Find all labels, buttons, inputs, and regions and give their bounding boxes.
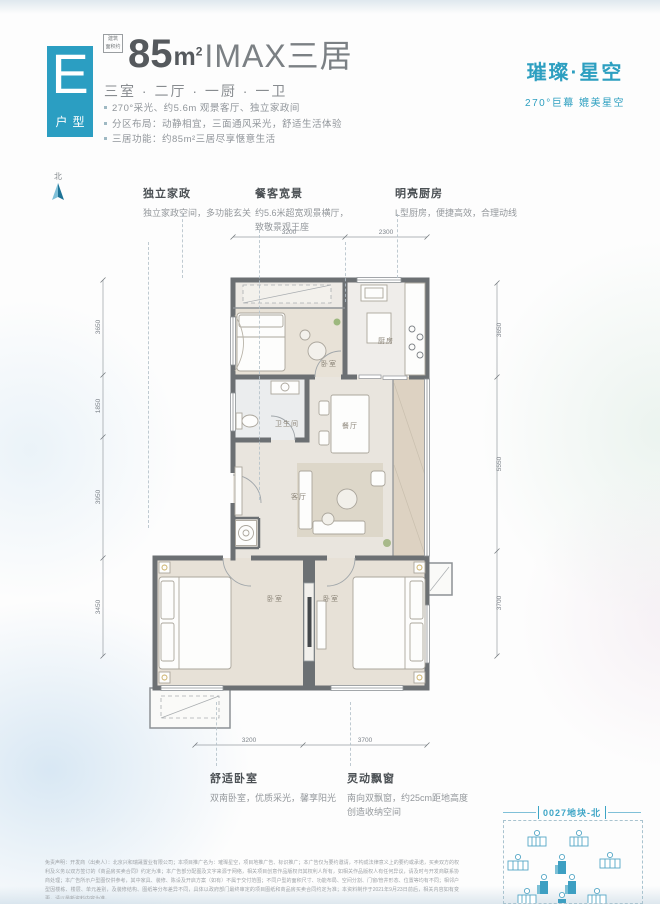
title-rule — [608, 812, 641, 813]
room-label: 卧室 — [323, 594, 339, 603]
dim-label: 3200 — [242, 737, 257, 744]
dim-label: 3450 — [95, 599, 102, 614]
dim-label: 3650 — [95, 319, 102, 334]
disclaimer-text: 免责声明：开发商（出卖人）：北京兴和瑞晟置业有限公司；本项目推广名为：璀璨星空，… — [45, 859, 459, 899]
sitemap-box — [503, 820, 643, 904]
header-bullet: 270°采光、约5.6m 观景客厅、独立家政间 — [104, 100, 300, 114]
flyer-page: E 户型 建筑 面积约 85 m2 IMAX三居 三室 · 二厅 · 一厨 · … — [0, 0, 660, 904]
leader-line — [148, 242, 149, 528]
north-compass: 北 — [46, 171, 70, 207]
room-label: 卫生间 — [275, 419, 299, 428]
leader-line — [182, 214, 183, 278]
project-slogan: 270°巨幕 媲美星空 — [505, 94, 645, 109]
bullet-dot — [104, 137, 107, 140]
dim-label: 3650 — [496, 322, 503, 337]
room-label: 卧室 — [321, 359, 337, 368]
dim-label: 3200 — [282, 229, 297, 236]
north-arrow-icon — [49, 182, 67, 202]
building-solid-icon — [537, 854, 576, 903]
dim-label: 2300 — [379, 229, 394, 236]
dim-label: 3700 — [496, 595, 503, 610]
area-unit: m2 — [174, 45, 203, 70]
area-badge: 建筑 面积约 — [103, 34, 123, 53]
room-label: 卧室 — [267, 594, 283, 603]
leader-line — [345, 242, 346, 302]
leader-line — [259, 230, 260, 500]
bullet-dot — [104, 122, 107, 125]
top-tint — [0, 0, 660, 14]
dim-label: 3950 — [95, 489, 102, 504]
floorplan: 卧室 厨房 餐厅 卫生间 客厅 卧室 卧室 3200 2300 3200 370… — [75, 225, 555, 760]
feature-note: 舒适卧室 双南卧室，优质采光，馨享阳光 — [210, 770, 336, 806]
unit-type-letter: E — [51, 46, 88, 102]
project-brand: 璀璨·星空 270°巨幕 媲美星空 — [505, 56, 645, 109]
room-label: 客厅 — [291, 492, 307, 501]
area-badge-line2: 面积约 — [105, 44, 120, 50]
leader-line — [350, 702, 351, 766]
bullet-dot — [104, 106, 107, 109]
unit-type-box: E 户型 — [47, 46, 93, 137]
dim-label: 1850 — [95, 398, 102, 413]
feature-note: 独立家政 独立家政空间，多功能玄关 — [143, 185, 251, 221]
sitemap-title: 0027地块-北 — [503, 806, 641, 819]
leader-line — [397, 214, 398, 278]
area-badge-line1: 建筑 — [108, 36, 118, 42]
unit-type-label: 户型 — [50, 113, 89, 130]
project-name: 璀璨·星空 — [505, 56, 645, 85]
dim-label: 3700 — [358, 737, 373, 744]
feature-note: 灵动飘窗 南向双飘窗，约25cm距地高度创造收纳空间 — [347, 770, 468, 819]
area-title: 建筑 面积约 85 m2 IMAX三居 — [103, 34, 353, 71]
sitemap-title-text: 0027地块-北 — [538, 806, 606, 819]
room-label: 厨房 — [378, 336, 394, 345]
title-rule — [503, 812, 536, 813]
dim-label: 5550 — [496, 456, 503, 471]
area-value: 85 — [128, 37, 173, 71]
room-label: 餐厅 — [342, 421, 358, 430]
header-bullet: 三居功能：约85m²三居尽享惬意生活 — [104, 131, 276, 145]
rooms-summary: 三室 · 二厅 · 一厨 · 一卫 — [104, 81, 287, 101]
area-suffix: IMAX三居 — [204, 42, 352, 71]
north-label: 北 — [46, 171, 70, 182]
leader-line — [216, 702, 217, 766]
header-bullet: 分区布局：动静相宜，三面通风采光，舒适生活体验 — [104, 116, 342, 130]
sitemap-buildings — [504, 821, 642, 903]
feature-note: 明亮厨房 L型厨房，便捷高效，合理动线 — [395, 185, 517, 221]
